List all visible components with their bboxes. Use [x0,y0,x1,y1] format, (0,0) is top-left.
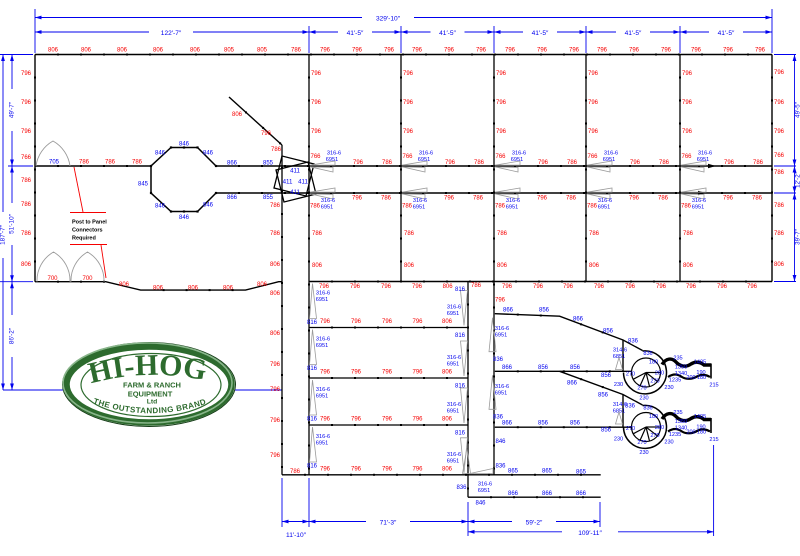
svg-text:806: 806 [442,417,453,423]
svg-text:796: 796 [320,417,331,423]
svg-text:6951: 6951 [692,205,704,211]
svg-text:866: 866 [573,317,584,323]
svg-text:786: 786 [495,204,506,210]
svg-text:6951: 6951 [316,343,328,349]
svg-text:796: 796 [774,70,785,76]
svg-text:187′-7″: 187′-7″ [0,224,7,245]
svg-text:6951: 6951 [447,409,459,415]
svg-text:796: 796 [21,129,32,135]
svg-text:6951: 6951 [316,297,328,303]
svg-text:796: 796 [717,284,728,290]
svg-text:796: 796 [691,48,702,54]
svg-text:796: 796 [682,100,693,106]
svg-text:866: 866 [503,308,514,314]
svg-text:786: 786 [681,204,692,210]
svg-text:796: 796 [382,467,393,473]
svg-text:856: 856 [603,329,614,335]
svg-text:796: 796 [350,284,361,290]
svg-text:316-6: 316-6 [413,198,427,204]
svg-text:796: 796 [412,370,423,376]
svg-text:796: 796 [412,467,423,473]
svg-text:796: 796 [270,362,281,368]
svg-text:806: 806 [119,282,130,288]
svg-text:6951: 6951 [316,394,328,400]
svg-text:796: 796 [594,284,605,290]
svg-text:796: 796 [686,284,697,290]
svg-text:200: 200 [686,430,695,436]
svg-text:6951: 6951 [603,157,615,163]
svg-text:786: 786 [471,283,482,289]
svg-text:270: 270 [626,372,635,378]
svg-text:411: 411 [290,189,300,196]
svg-text:786: 786 [290,469,301,475]
svg-text:796: 796 [537,196,548,202]
svg-text:796: 796 [351,467,362,473]
svg-text:866: 866 [576,491,587,497]
svg-text:316-6: 316-6 [327,151,341,157]
svg-text:316-6: 316-6 [478,482,492,488]
svg-text:796: 796 [403,100,414,106]
svg-text:180: 180 [649,414,658,420]
svg-text:6951: 6951 [511,157,523,163]
svg-text:796: 796 [382,370,393,376]
svg-text:FARM & RANCH: FARM & RANCH [123,381,181,390]
svg-text:796: 796 [629,196,640,202]
svg-text:796: 796 [351,417,362,423]
svg-text:796: 796 [382,417,393,423]
svg-text:796: 796 [382,319,393,325]
svg-text:786: 786 [774,170,785,176]
svg-text:786: 786 [270,231,281,237]
svg-text:6951: 6951 [598,205,610,211]
svg-text:316-6: 316-6 [447,305,461,311]
svg-text:270: 270 [650,433,659,439]
svg-text:856: 856 [538,421,549,427]
svg-text:796: 796 [505,48,516,54]
svg-text:796: 796 [629,48,640,54]
svg-text:836: 836 [625,404,636,410]
svg-text:796: 796 [537,48,548,54]
svg-text:49′-5″: 49′-5″ [795,101,800,118]
svg-text:786: 786 [270,203,281,209]
svg-text:866: 866 [502,421,513,427]
svg-text:316-6: 316-6 [447,402,461,408]
svg-text:6951: 6951 [326,157,338,163]
svg-text:786: 786 [567,160,578,166]
svg-text:786: 786 [404,231,415,237]
svg-text:316-6: 316-6 [598,198,612,204]
svg-text:846: 846 [155,204,166,210]
svg-text:705: 705 [49,160,60,166]
svg-text:805: 805 [224,48,235,54]
svg-text:816: 816 [307,366,318,372]
svg-text:316-6: 316-6 [506,198,520,204]
svg-text:316-6: 316-6 [316,387,330,393]
svg-text:766: 766 [310,154,321,160]
svg-text:786: 786 [271,147,282,153]
svg-text:230: 230 [664,385,673,391]
svg-text:796: 796 [747,284,758,290]
svg-text:846: 846 [203,203,214,209]
svg-text:1350: 1350 [675,419,687,425]
svg-text:846: 846 [155,151,166,157]
svg-text:806: 806 [683,263,694,269]
svg-text:786: 786 [474,160,485,166]
svg-text:796: 796 [625,284,636,290]
svg-text:796: 796 [403,129,414,135]
svg-text:786: 786 [473,196,484,202]
svg-text:816: 816 [307,417,318,423]
svg-text:816: 816 [307,464,318,470]
svg-text:230: 230 [614,437,623,443]
svg-text:796: 796 [311,100,322,106]
svg-text:796: 796 [630,160,641,166]
svg-text:786: 786 [402,204,413,210]
svg-text:12′-2″: 12′-2″ [795,171,800,188]
svg-text:806: 806 [589,263,600,269]
svg-text:316-6: 316-6 [316,337,330,343]
svg-text:270: 270 [637,440,646,446]
svg-text:766: 766 [21,155,32,161]
svg-text:786: 786 [132,160,143,166]
svg-text:806: 806 [190,48,201,54]
svg-text:796: 796 [723,196,734,202]
svg-text:796: 796 [533,284,544,290]
svg-text:796: 796 [320,319,331,325]
svg-text:71′-3″: 71′-3″ [380,520,397,527]
svg-text:Required: Required [72,236,96,242]
svg-text:6951: 6951 [447,458,459,464]
svg-text:796: 796 [682,129,693,135]
svg-text:796: 796 [21,100,32,106]
svg-text:51′-10″: 51′-10″ [9,213,16,234]
svg-text:796: 796 [588,100,599,106]
svg-text:866: 866 [227,195,238,201]
svg-text:796: 796 [270,387,281,393]
svg-text:6951: 6951 [506,205,518,211]
svg-text:796: 796 [352,48,363,54]
svg-text:Connectors: Connectors [72,228,103,234]
svg-text:1405: 1405 [694,414,706,420]
svg-text:786: 786 [497,231,508,237]
svg-text:806: 806 [442,467,453,473]
svg-text:1405: 1405 [694,360,706,366]
svg-text:786: 786 [21,202,32,208]
svg-text:6951: 6951 [447,362,459,368]
svg-text:786: 786 [658,196,669,202]
svg-text:856: 856 [538,365,549,371]
svg-text:806: 806 [48,48,59,54]
svg-text:270: 270 [650,379,659,385]
svg-text:796: 796 [661,48,672,54]
svg-text:316-6: 316-6 [321,198,335,204]
svg-text:796: 796 [496,129,507,135]
svg-text:786: 786 [382,160,393,166]
svg-text:316-6: 316-6 [512,151,526,157]
svg-text:6951: 6951 [447,311,459,317]
svg-text:1350: 1350 [675,365,687,371]
svg-text:411: 411 [290,168,300,175]
svg-text:796: 796 [412,417,423,423]
svg-text:6951: 6951 [478,488,490,494]
svg-text:786: 786 [752,196,763,202]
svg-text:314-6: 314-6 [613,348,627,354]
svg-text:316-6: 316-6 [316,434,330,440]
svg-text:796: 796 [588,71,599,77]
svg-text:806: 806 [232,112,243,118]
svg-text:856: 856 [539,308,550,314]
svg-text:EQUIPMENT: EQUIPMENT [128,390,173,399]
svg-text:786: 786 [566,196,577,202]
svg-text:796: 796 [774,129,785,135]
svg-text:836: 836 [493,357,504,363]
svg-text:846: 846 [495,439,506,445]
svg-text:816: 816 [307,320,318,326]
svg-text:6951: 6951 [697,157,709,163]
svg-text:856: 856 [570,421,581,427]
svg-text:316-6: 316-6 [316,291,330,297]
svg-text:796: 796 [723,48,734,54]
svg-text:270: 270 [626,426,635,432]
svg-text:855: 855 [263,161,274,167]
svg-text:230: 230 [639,396,648,402]
svg-text:180: 180 [697,375,706,381]
svg-text:786: 786 [589,231,600,237]
svg-text:786: 786 [683,231,694,237]
svg-text:796: 796 [311,129,322,135]
svg-text:316-6: 316-6 [604,151,618,157]
svg-text:836: 836 [456,485,467,491]
svg-text:6951: 6951 [316,441,328,447]
svg-text:796: 796 [21,71,32,77]
svg-text:796: 796 [384,48,395,54]
svg-text:816: 816 [455,430,466,436]
svg-text:796: 796 [353,160,364,166]
svg-text:816: 816 [455,333,466,339]
svg-text:796: 796 [261,131,272,137]
svg-text:796: 796 [563,284,574,290]
svg-text:215: 215 [709,383,718,389]
svg-text:796: 796 [502,284,513,290]
svg-text:230: 230 [614,382,623,388]
svg-text:49′-7″: 49′-7″ [9,101,16,118]
svg-text:316-6: 316-6 [495,326,509,332]
svg-text:109′-11″: 109′-11″ [578,530,602,537]
svg-text:796: 796 [774,100,785,106]
svg-text:856: 856 [570,365,581,371]
svg-text:1235: 1235 [669,432,681,438]
svg-text:866: 866 [508,491,519,497]
svg-text:836: 836 [628,339,639,345]
svg-text:786: 786 [753,160,764,166]
svg-text:796: 796 [412,319,423,325]
svg-text:796: 796 [496,100,507,106]
svg-text:230: 230 [639,450,648,456]
svg-text:806: 806 [497,263,508,269]
svg-text:6951: 6951 [495,333,507,339]
svg-text:316-6: 316-6 [495,384,509,390]
svg-text:796: 796 [569,48,580,54]
svg-text:786: 786 [21,178,32,184]
svg-text:6951: 6951 [321,205,333,211]
svg-text:796: 796 [682,71,693,77]
svg-text:796: 796 [538,160,549,166]
svg-text:796: 796 [495,298,506,304]
svg-text:846: 846 [203,151,214,157]
svg-text:786: 786 [774,203,785,209]
svg-text:786: 786 [79,160,90,166]
svg-text:411: 411 [283,179,293,186]
svg-text:766: 766 [402,154,413,160]
svg-text:766: 766 [681,154,692,160]
svg-text:855: 855 [263,195,274,201]
svg-text:796: 796 [656,284,667,290]
svg-text:796: 796 [320,467,331,473]
svg-text:866: 866 [227,161,238,167]
svg-text:796: 796 [444,48,455,54]
svg-text:796: 796 [724,160,735,166]
svg-text:316-6: 316-6 [692,198,706,204]
svg-text:786: 786 [310,204,321,210]
svg-text:786: 786 [659,160,670,166]
svg-text:786: 786 [21,231,32,237]
svg-text:235: 235 [673,356,682,362]
svg-text:806: 806 [774,262,785,268]
svg-text:796: 796 [444,196,455,202]
svg-text:806: 806 [21,262,32,268]
svg-text:806: 806 [404,263,415,269]
svg-text:866: 866 [542,491,553,497]
svg-text:816: 816 [455,287,466,293]
svg-text:796: 796 [352,196,363,202]
svg-text:836: 836 [643,406,652,412]
svg-text:59′-2″: 59′-2″ [526,520,543,527]
svg-text:806: 806 [270,291,281,297]
svg-text:866: 866 [502,365,513,371]
svg-text:806: 806 [443,284,454,290]
svg-text:11′-10″: 11′-10″ [286,532,307,539]
svg-text:41′-5″: 41′-5″ [718,30,735,37]
svg-text:806: 806 [442,319,453,325]
svg-text:796: 796 [270,453,281,459]
svg-text:766: 766 [495,154,506,160]
svg-text:700: 700 [82,276,93,282]
svg-text:180: 180 [649,360,658,366]
svg-text:866: 866 [567,381,578,387]
svg-text:786: 786 [291,48,302,54]
svg-text:856: 856 [598,393,609,399]
svg-text:786: 786 [587,204,598,210]
svg-text:796: 796 [412,284,423,290]
svg-text:796: 796 [755,48,766,54]
svg-text:270: 270 [637,386,646,392]
svg-text:766: 766 [774,153,785,159]
svg-text:316-6: 316-6 [447,355,461,361]
svg-text:6951: 6951 [495,390,507,396]
svg-text:280: 280 [655,425,664,431]
svg-text:796: 796 [320,48,331,54]
svg-text:865: 865 [576,470,587,476]
svg-text:846: 846 [475,501,486,507]
svg-text:796: 796 [270,418,281,424]
svg-text:806: 806 [153,286,164,292]
svg-text:786: 786 [312,231,323,237]
svg-text:1235: 1235 [669,378,681,384]
svg-text:41′-5″: 41′-5″ [347,30,364,37]
svg-text:Ltd: Ltd [147,399,158,406]
svg-text:806: 806 [270,331,281,337]
svg-text:316-6: 316-6 [698,151,712,157]
svg-text:786: 786 [774,231,785,237]
svg-text:865: 865 [542,469,553,475]
svg-text:806: 806 [117,48,128,54]
svg-text:41′-5″: 41′-5″ [439,30,456,37]
svg-text:796: 796 [412,48,423,54]
svg-text:806: 806 [153,48,164,54]
svg-text:816: 816 [455,383,466,389]
svg-text:805: 805 [257,48,268,54]
svg-text:235: 235 [673,410,682,416]
svg-text:6951: 6951 [418,157,430,163]
svg-text:856: 856 [601,428,612,434]
svg-text:796: 796 [597,48,608,54]
svg-text:796: 796 [320,370,331,376]
svg-text:86′-2″: 86′-2″ [9,327,16,344]
svg-text:865: 865 [508,469,519,475]
svg-text:230: 230 [664,440,673,446]
svg-text:200: 200 [686,375,695,381]
svg-text:Post to Panel: Post to Panel [72,220,107,226]
svg-text:796: 796 [319,284,330,290]
svg-text:786: 786 [381,196,392,202]
svg-text:796: 796 [403,71,414,77]
svg-text:766: 766 [587,154,598,160]
svg-text:316-6: 316-6 [447,452,461,458]
svg-text:122′-7″: 122′-7″ [161,30,182,37]
svg-text:846: 846 [179,142,190,148]
svg-text:180: 180 [697,430,706,436]
svg-text:796: 796 [351,319,362,325]
svg-text:329′-10″: 329′-10″ [376,16,401,23]
svg-text:796: 796 [476,48,487,54]
svg-text:411: 411 [298,179,308,186]
svg-text:700: 700 [47,276,58,282]
svg-text:41′-5″: 41′-5″ [625,30,642,37]
svg-text:806: 806 [312,263,323,269]
svg-text:796: 796 [445,160,456,166]
svg-text:796: 796 [311,71,322,77]
svg-text:6951: 6951 [413,205,425,211]
svg-text:41′-5″: 41′-5″ [532,30,549,37]
svg-text:806: 806 [257,282,268,288]
svg-text:316-6: 316-6 [419,151,433,157]
svg-text:796: 796 [351,370,362,376]
svg-text:836: 836 [643,351,652,357]
svg-text:215: 215 [709,437,718,443]
svg-text:796: 796 [496,71,507,77]
svg-text:856: 856 [601,373,612,379]
svg-text:806: 806 [188,286,199,292]
svg-text:796: 796 [588,129,599,135]
svg-text:845: 845 [138,182,149,188]
svg-text:806: 806 [270,262,281,268]
svg-text:806: 806 [223,286,234,292]
svg-text:846: 846 [179,215,190,221]
svg-text:796: 796 [381,284,392,290]
svg-text:280: 280 [655,371,664,377]
svg-text:786: 786 [105,160,116,166]
svg-text:806: 806 [442,370,453,376]
